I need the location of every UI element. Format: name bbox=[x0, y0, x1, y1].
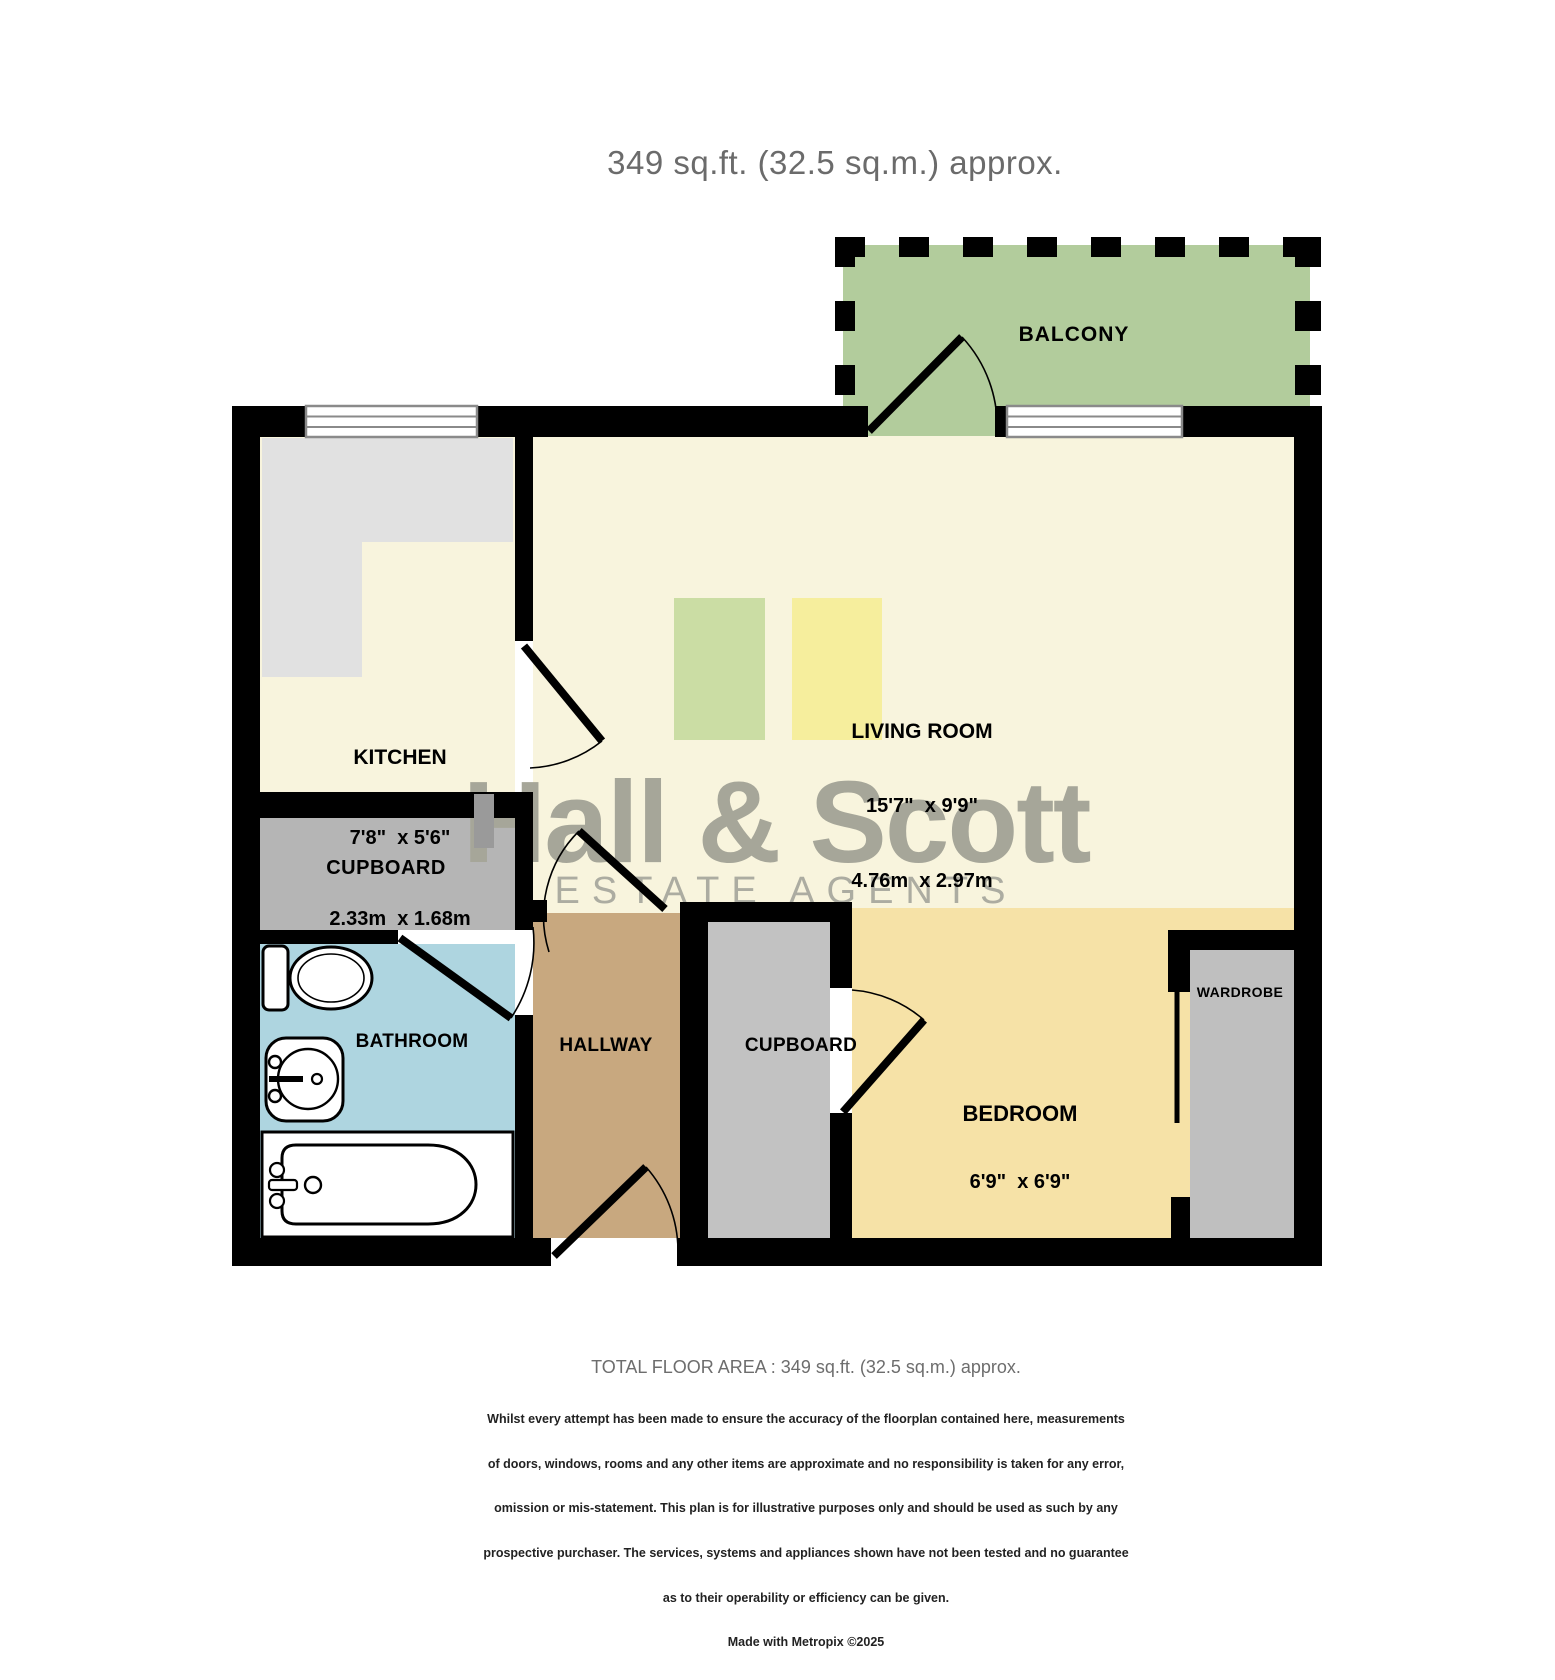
wall-kitchen-living bbox=[515, 437, 533, 641]
wall-cupboard2-right-lower bbox=[830, 1113, 852, 1238]
bathtub-icon bbox=[262, 1132, 513, 1237]
kitchen-counter-top bbox=[262, 438, 513, 542]
hallway-label: HALLWAY bbox=[559, 1034, 652, 1058]
disclaimer: Whilst every attempt has been made to en… bbox=[446, 1382, 1166, 1680]
balcony-label: BALCONY bbox=[1019, 322, 1130, 348]
wall-wardrobe-stub-top bbox=[1168, 950, 1190, 992]
kitchen-label: KITCHEN 7'8" x 5'6" 2.33m x 1.68m bbox=[329, 690, 470, 987]
hallway-floor bbox=[533, 913, 680, 1238]
living-room-size-metric: 4.76m x 2.97m bbox=[851, 869, 992, 894]
kitchen-window bbox=[306, 406, 477, 437]
living-room-name: LIVING ROOM bbox=[851, 719, 992, 744]
wall-bath-hall-lower bbox=[515, 1015, 533, 1238]
wall-top-2 bbox=[477, 406, 868, 437]
cupboard-lower-label: CUPBOARD bbox=[745, 1034, 857, 1058]
disclaimer-line: as to their operability or efficiency ca… bbox=[446, 1591, 1166, 1606]
wall-hall-cupboard2 bbox=[680, 902, 708, 1238]
disclaimer-line: Whilst every attempt has been made to en… bbox=[446, 1412, 1166, 1427]
disclaimer-line: of doors, windows, rooms and any other i… bbox=[446, 1457, 1166, 1472]
balcony-window bbox=[1007, 406, 1182, 437]
wall-wardrobe-top bbox=[1168, 930, 1294, 950]
wardrobe-label: WARDROBE bbox=[1197, 984, 1283, 1002]
wall-bath-hall-upper bbox=[515, 818, 533, 930]
wall-wardrobe-stub-bottom bbox=[1171, 1197, 1190, 1238]
wall-right bbox=[1294, 406, 1322, 1266]
bedroom-label: BEDROOM 6'9" x 6'9" 2.07m x 2.07m bbox=[949, 1056, 1090, 1309]
cupboard-lower-floor bbox=[708, 922, 830, 1238]
floorplan-page: 349 sq.ft. (32.5 sq.m.) approx. bbox=[0, 0, 1555, 1500]
living-room-size-imperial: 15'7" x 9'9" bbox=[851, 794, 992, 819]
disclaimer-line: prospective purchaser. The services, sys… bbox=[446, 1546, 1166, 1561]
wall-cupboard2-top bbox=[680, 902, 852, 922]
sink-icon bbox=[266, 1038, 343, 1121]
wall-bottom-left bbox=[232, 1238, 551, 1266]
bedroom-size-metric: 2.07m x 2.07m bbox=[949, 1240, 1090, 1263]
bedroom-name: BEDROOM bbox=[949, 1102, 1090, 1125]
kitchen-name: KITCHEN bbox=[329, 744, 470, 771]
kitchen-flue bbox=[474, 794, 494, 848]
watermark-brand: Hall & Scott bbox=[463, 757, 1091, 887]
wall-left bbox=[232, 406, 260, 1266]
bedroom-size-imperial: 6'9" x 6'9" bbox=[949, 1171, 1090, 1194]
total-floor-area: TOTAL FLOOR AREA : 349 sq.ft. (32.5 sq.m… bbox=[591, 1357, 1021, 1378]
metropix-credit: Made with Metropix ©2025 bbox=[446, 1635, 1166, 1650]
disclaimer-line: omission or mis-statement. This plan is … bbox=[446, 1501, 1166, 1516]
watermark: Hall & Scott ESTATE AGENTS bbox=[463, 757, 1091, 912]
kitchen-counter-side bbox=[262, 542, 362, 677]
floorplan-graphic: Hall & Scott ESTATE AGENTS bbox=[0, 0, 1555, 1500]
wall-cupboard2-right-upper bbox=[830, 922, 852, 988]
bathroom-label: BATHROOM bbox=[356, 1030, 469, 1054]
living-room-rug-green bbox=[674, 598, 765, 740]
cupboard-upper-label: CUPBOARD bbox=[326, 856, 446, 881]
living-room-label: LIVING ROOM 15'7" x 9'9" 4.76m x 2.97m bbox=[851, 669, 992, 944]
kitchen-size-metric: 2.33m x 1.68m bbox=[329, 906, 470, 933]
kitchen-size-imperial: 7'8" x 5'6" bbox=[329, 825, 470, 852]
